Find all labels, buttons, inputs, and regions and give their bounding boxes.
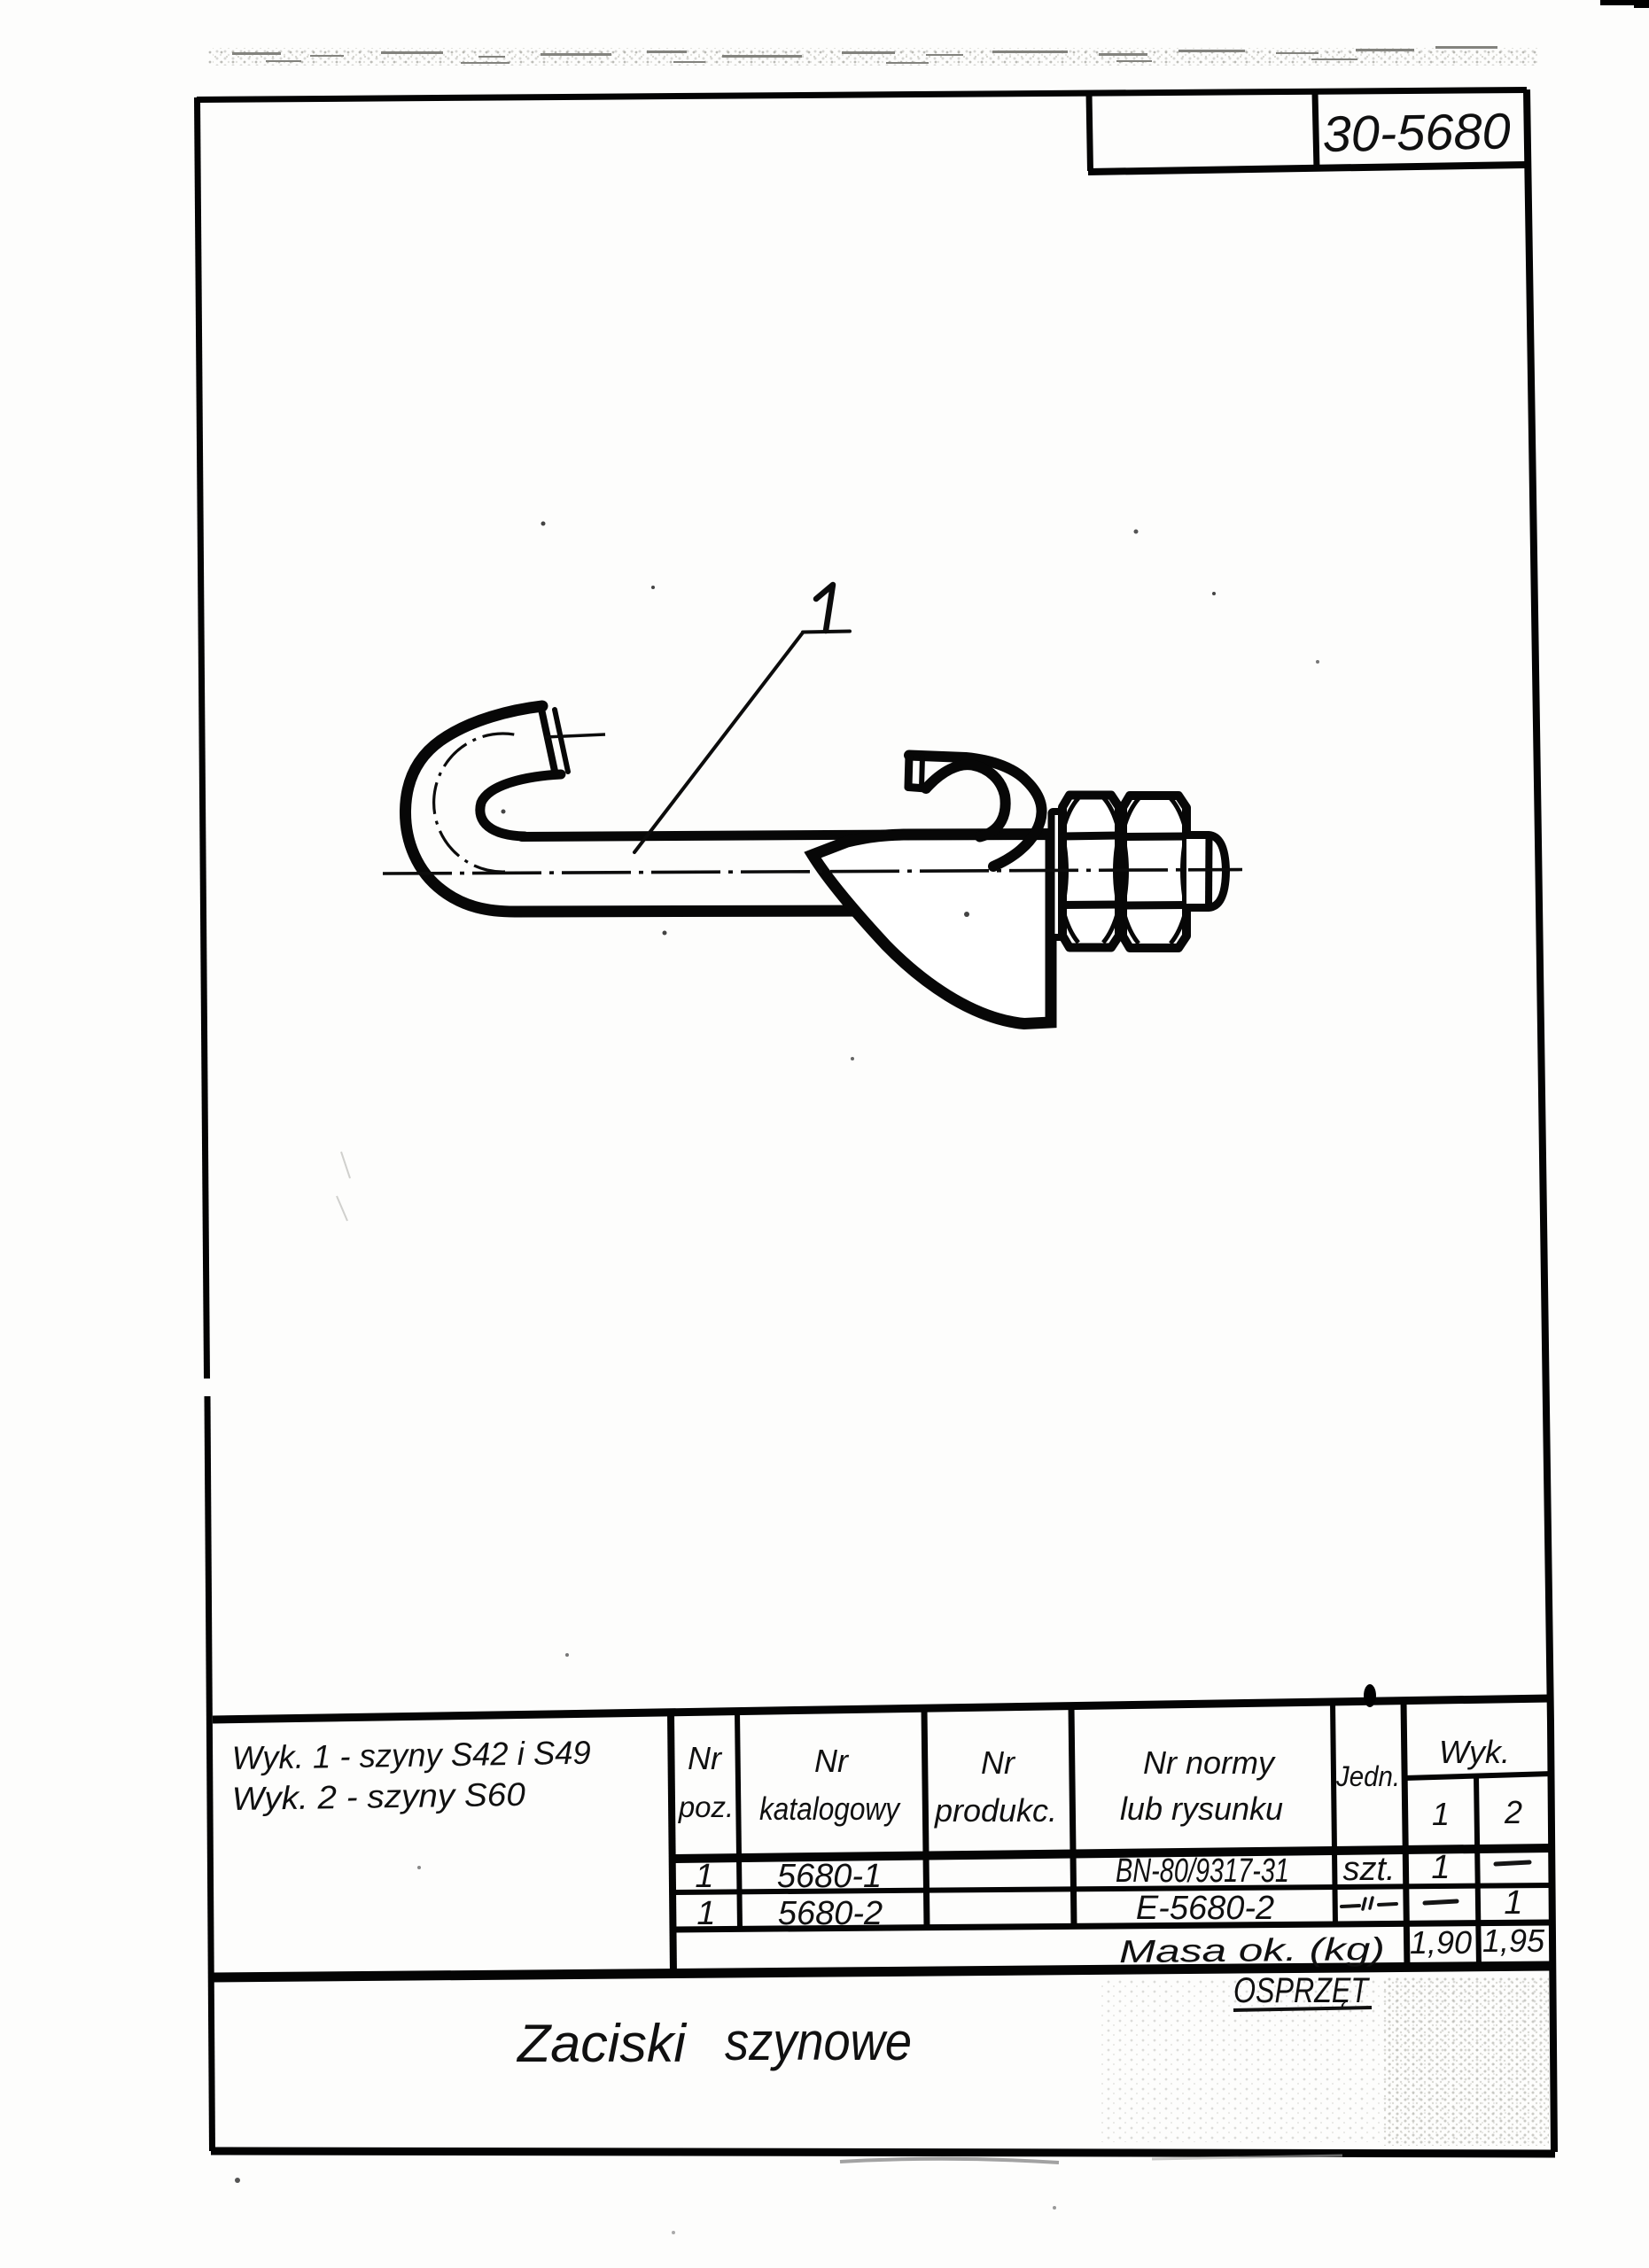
svg-text:30-5680: 30-5680 [1322,103,1511,163]
svg-text:szynowe: szynowe [725,2012,912,2071]
svg-text:BN-80/9317-31: BN-80/9317-31 [1116,1852,1289,1890]
svg-text:poz.: poz. [678,1790,734,1823]
svg-text:lub rysunku: lub rysunku [1120,1790,1283,1827]
svg-text:1: 1 [1504,1884,1522,1922]
svg-text:1: 1 [1431,1849,1450,1886]
svg-text:1: 1 [696,1895,715,1932]
svg-text:E-5680-2: E-5680-2 [1136,1890,1274,1927]
svg-text:OSPRZĘT: OSPRZĘT [1233,1971,1370,2010]
svg-text:1,95: 1,95 [1482,1922,1545,1959]
svg-text:5680-2: 5680-2 [778,1895,883,1932]
svg-text:1,90: 1,90 [1410,1924,1472,1961]
svg-text:2: 2 [1504,1794,1522,1830]
svg-text:1: 1 [695,1858,713,1895]
svg-text:Nr: Nr [688,1740,723,1776]
svg-text:Wyk. 1 - szyny S42 i S49: Wyk. 1 - szyny S42 i S49 [231,1735,591,1776]
svg-text:Nr normy: Nr normy [1143,1744,1276,1781]
svg-text:Masa ok. (kg): Masa ok. (kg) [1119,1930,1385,1969]
svg-text:Wyk. 2 - szyny S60: Wyk. 2 - szyny S60 [231,1776,525,1817]
svg-text:Jedn.: Jedn. [1335,1760,1400,1792]
svg-text:Nr: Nr [981,1744,1016,1781]
svg-text:katalogowy: katalogowy [759,1790,901,1827]
svg-text:1: 1 [1432,1796,1450,1832]
svg-text:Nr: Nr [814,1743,850,1779]
svg-text:Zaciski: Zaciski [516,2014,688,2073]
svg-text:Wyk.: Wyk. [1439,1734,1510,1770]
svg-text:szt.: szt. [1342,1851,1395,1888]
svg-text:produkc.: produkc. [934,1792,1057,1829]
svg-text:5680-1: 5680-1 [777,1858,882,1895]
